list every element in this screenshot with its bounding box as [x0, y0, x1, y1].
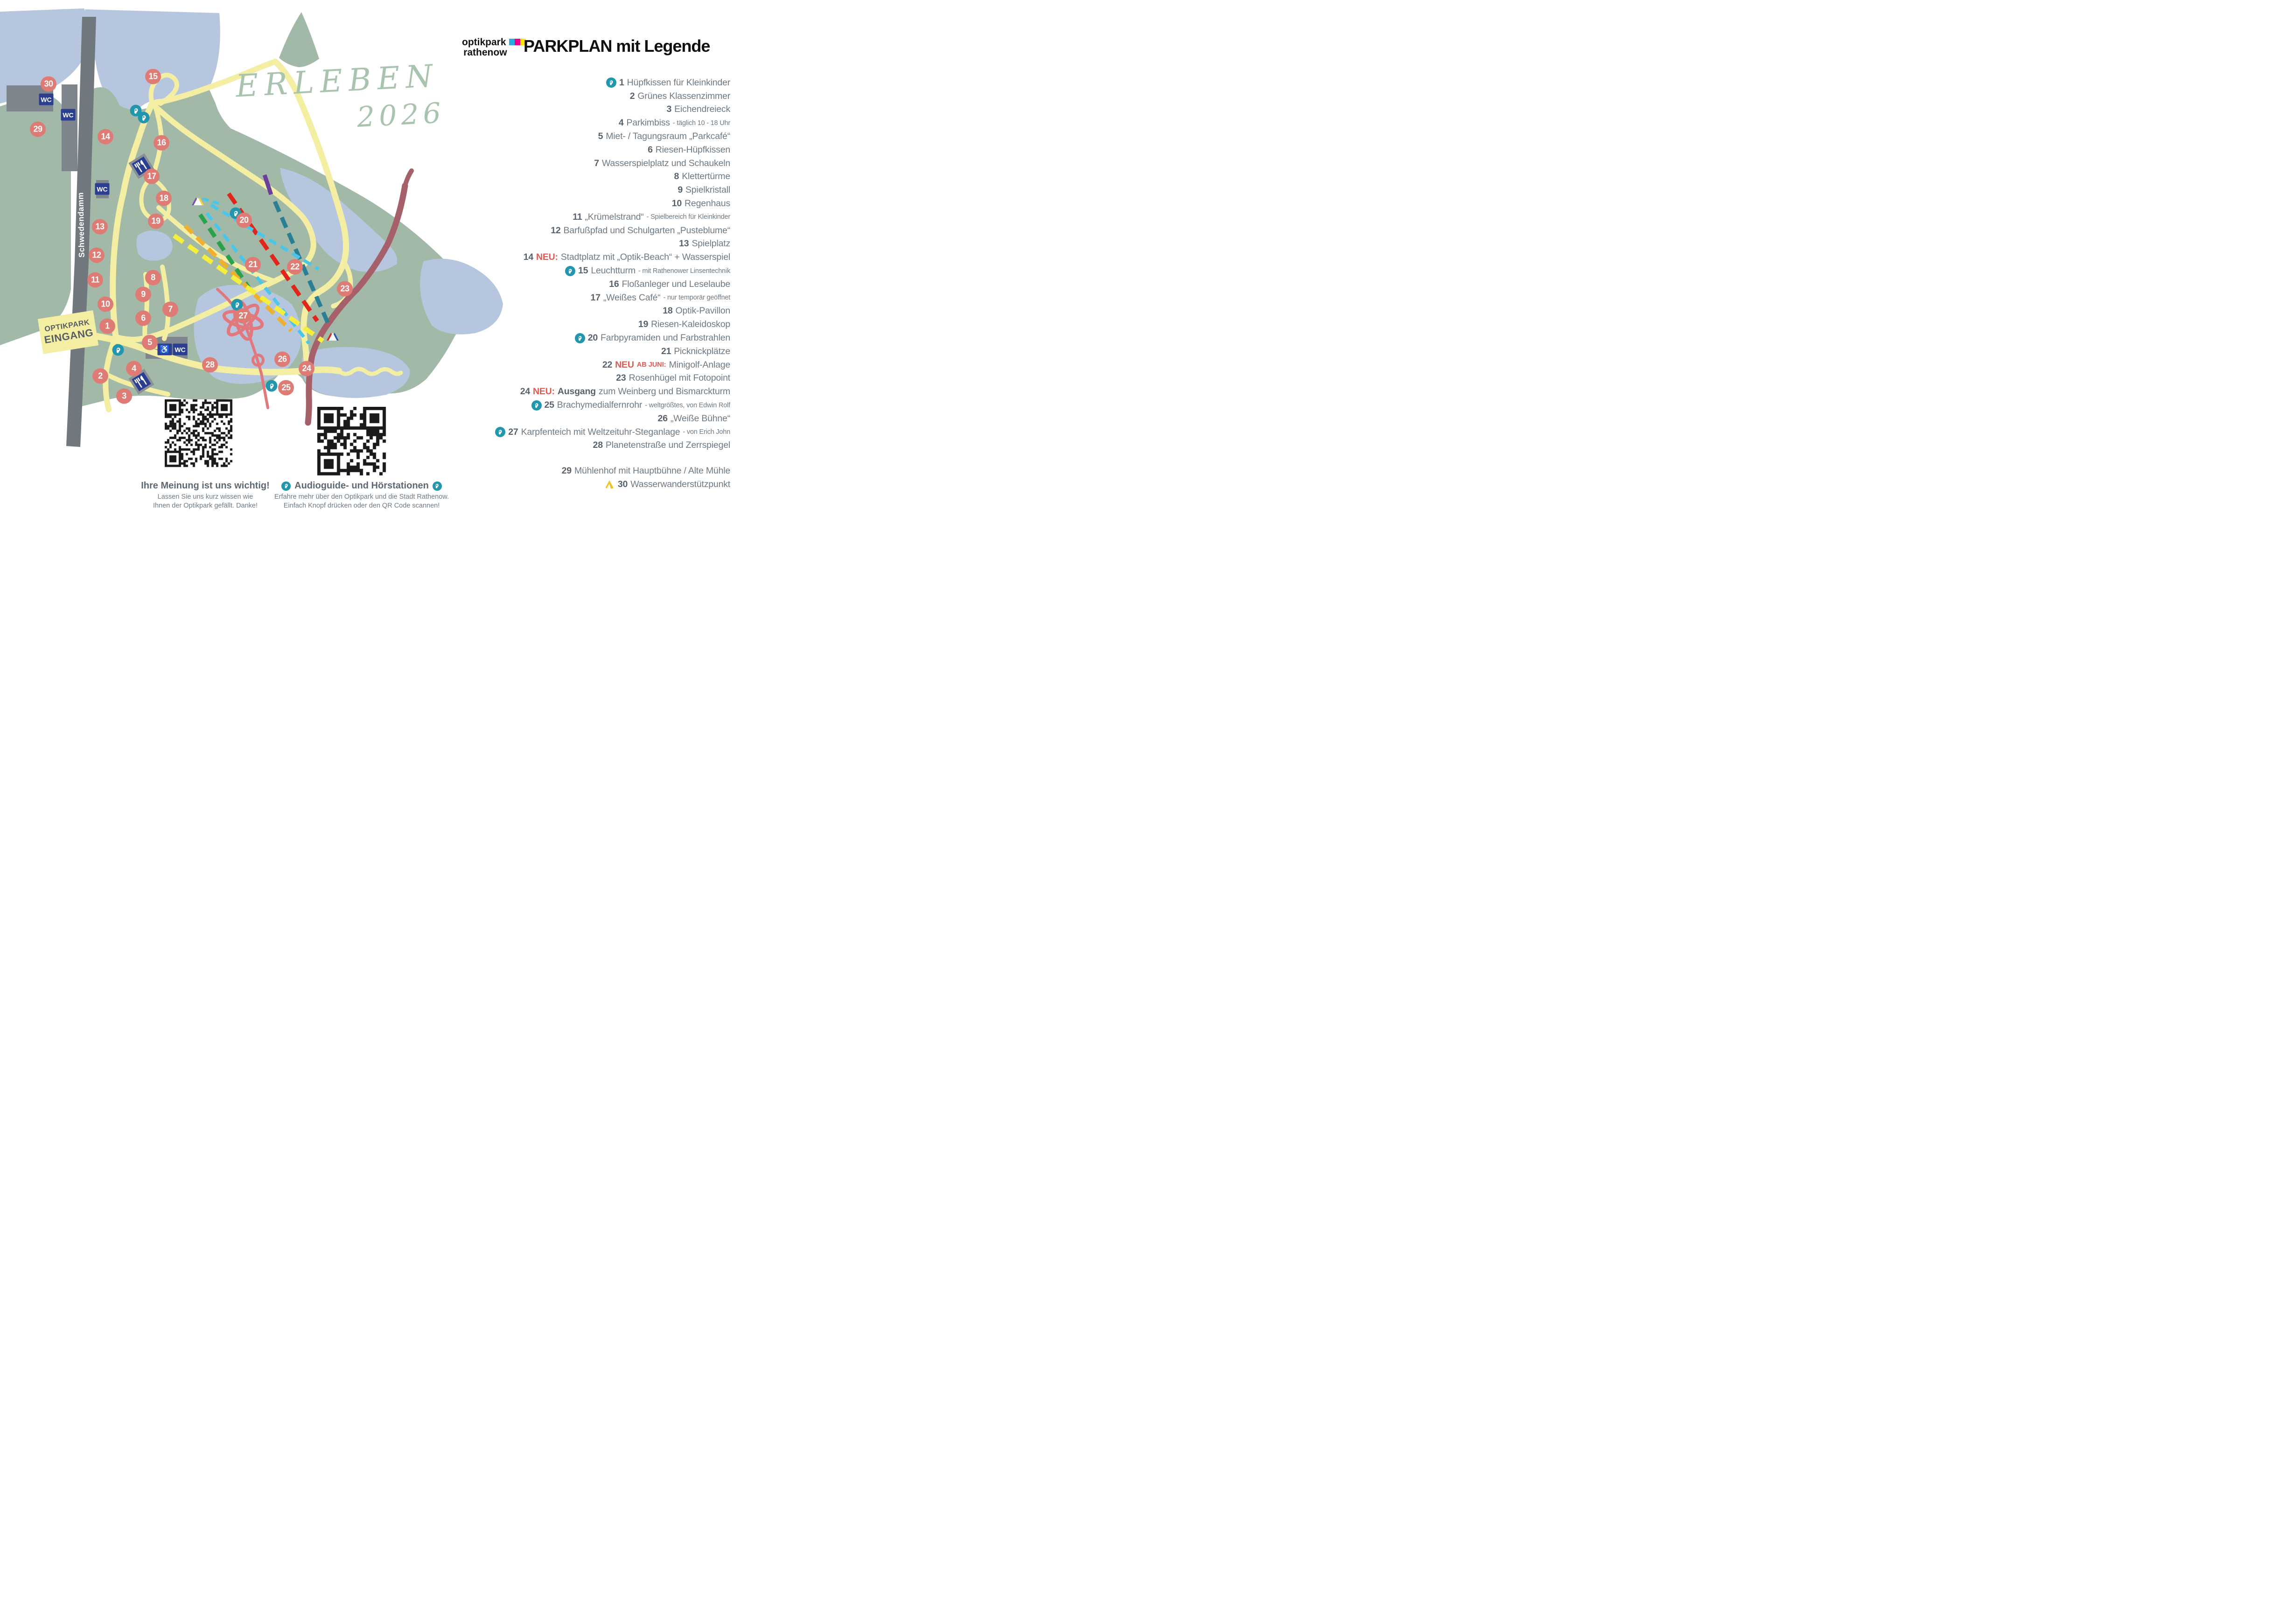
- map-marker-19[interactable]: 19: [148, 214, 164, 229]
- optikpark-logo: optikpark rathenow: [462, 37, 526, 58]
- legend-item-bold: Ausgang: [558, 386, 596, 397]
- legend-item-number: 18: [663, 306, 672, 316]
- legend-item-label: Grünes Klassenzimmer: [637, 91, 730, 102]
- legend-item-label: Parkimbiss: [627, 118, 670, 128]
- legend-item-25: 25Brachymedialfernrohr- weltgrößtes, von…: [495, 398, 730, 412]
- wc-icon: WC: [61, 109, 76, 121]
- qr-code-audioguide: [317, 407, 387, 478]
- legend-item-number: 20: [588, 333, 598, 343]
- legend-item-20: 20Farbpyramiden und Farbstrahlen: [495, 331, 730, 345]
- street-label: Schwedendamm: [76, 186, 87, 263]
- map-marker-12[interactable]: 12: [89, 248, 105, 263]
- legend-item-label: Minigolf-Anlage: [669, 360, 730, 370]
- legend-item-number: 9: [678, 185, 683, 195]
- legend-item-number: 5: [598, 131, 603, 142]
- wc-icon: WC: [39, 94, 54, 105]
- legend-item-13: 13Spielplatz: [495, 237, 730, 251]
- audio-station-icon[interactable]: [112, 344, 124, 356]
- legend-item-label: „Weißes Café“: [603, 293, 661, 303]
- map-marker-13[interactable]: 13: [92, 219, 108, 235]
- legend-item-label: Miet- / Tagungsraum „Parkcafé“: [606, 131, 730, 142]
- legend-item-label: Wasserwanderstützpunkt: [630, 479, 730, 490]
- legend-item-22: 22NEUAB JUNI:Minigolf-Anlage: [495, 358, 730, 372]
- page-title: PARKPLAN mit Legende: [524, 36, 710, 56]
- legend-item-21: 21Picknickplätze: [495, 345, 730, 358]
- legend-item-number: 27: [508, 427, 518, 438]
- legend-item-number: 7: [594, 158, 599, 169]
- legend-item-number: 12: [551, 225, 560, 236]
- lake-east: [420, 259, 503, 335]
- legend-item-label: Leuchtturm: [591, 265, 636, 276]
- legend-item-5: 5Miet- / Tagungsraum „Parkcafé“: [495, 130, 730, 143]
- legend: 1Hüpfkissen für Kleinkinder2Grünes Klass…: [495, 76, 730, 491]
- season-year: 2026: [356, 97, 446, 134]
- map-marker-25[interactable]: 25: [278, 380, 294, 396]
- parkplan-page: ERLEBEN 2026 optikpark rathenow PARKPLAN…: [0, 0, 760, 542]
- map-marker-18[interactable]: 18: [156, 191, 172, 206]
- map-marker-16[interactable]: 16: [154, 135, 169, 151]
- legend-item-label: Wasserspielplatz und Schaukeln: [602, 158, 730, 169]
- legend-item-number: 13: [679, 238, 689, 249]
- map-marker-28[interactable]: 28: [202, 357, 218, 373]
- audio-station-icon[interactable]: [138, 112, 150, 124]
- logo-word-2: rathenow: [462, 48, 526, 58]
- legend-item-number: 14: [524, 252, 533, 263]
- legend-item-note: - von Erich John: [683, 428, 730, 436]
- map-marker-10[interactable]: 10: [98, 297, 113, 312]
- audio-icon: [565, 266, 575, 276]
- map-marker-20[interactable]: 20: [236, 213, 252, 228]
- legend-item-note: - mit Rathenower Linsentechnik: [638, 267, 730, 275]
- legend-item-11: 11„Krümelstrand“- Spielbereich für Klein…: [495, 210, 730, 224]
- audio-icon: [575, 333, 585, 343]
- legend-item-label: Brachymedialfernrohr: [557, 400, 642, 411]
- map-marker-4[interactable]: 4: [126, 361, 142, 376]
- legend-item-15: 15Leuchtturm- mit Rathenower Linsentechn…: [495, 264, 730, 278]
- logo-word-1: optikpark: [462, 37, 506, 48]
- audioguide-line1: Erfahre mehr über den Optikpark und die …: [254, 493, 469, 502]
- legend-item-number: 3: [666, 104, 671, 115]
- wc-icon: WC: [95, 183, 110, 195]
- audioguide-title: Audioguide- und Hörstationen: [294, 481, 429, 491]
- legend-item-label: „Krümelstrand“: [585, 212, 643, 223]
- legend-item-number: 22: [602, 360, 612, 370]
- legend-item-19: 19Riesen-Kaleidoskop: [495, 318, 730, 331]
- legend-item-number: 28: [593, 440, 603, 451]
- legend-new-flag: NEU:: [533, 386, 555, 397]
- legend-item-note: - Spielbereich für Kleinkinder: [647, 213, 730, 221]
- legend-item-14: 14NEU:Stadtplatz mit „Optik-Beach“ + Was…: [495, 251, 730, 264]
- legend-item-label: Farbpyramiden und Farbstrahlen: [601, 333, 730, 343]
- legend-item-label: zum Weinberg und Bismarckturm: [599, 386, 730, 397]
- map-marker-3[interactable]: 3: [116, 389, 132, 404]
- legend-new-detail: AB JUNI:: [637, 361, 666, 369]
- map-marker-29[interactable]: 29: [30, 122, 46, 137]
- legend-item-29: 29Mühlenhof mit Hauptbühne / Alte Mühle: [495, 464, 730, 478]
- legend-item-number: 30: [618, 479, 628, 490]
- legend-item-number: 15: [578, 265, 588, 276]
- legend-item-label: Picknickplätze: [674, 346, 730, 357]
- legend-item-label: Riesen-Kaleidoskop: [651, 319, 730, 330]
- map-marker-7[interactable]: 7: [162, 302, 178, 317]
- legend-new-flag: NEU: [615, 360, 634, 370]
- legend-item-27: 27Karpfenteich mit Weltzeituhr-Steganlag…: [495, 425, 730, 439]
- legend-item-number: 10: [672, 198, 682, 209]
- legend-item-note: - weltgrößtes, von Edwin Rolf: [645, 402, 730, 409]
- legend-item-12: 12Barfußpfad und Schulgarten „Pusteblume…: [495, 224, 730, 237]
- legend-item-2: 2Grünes Klassenzimmer: [495, 90, 730, 103]
- legend-item-23: 23Rosenhügel mit Fotopoint: [495, 372, 730, 385]
- legend-item-label: Karpfenteich mit Weltzeituhr-Steganlage: [521, 427, 680, 438]
- legend-item-16: 16Floßanleger und Leselaube: [495, 278, 730, 291]
- legend-item-label: Stadtplatz mit „Optik-Beach“ + Wasserspi…: [561, 252, 730, 263]
- audioguide-line2: Einfach Knopf drücken oder den QR Code s…: [254, 502, 469, 510]
- map-marker-8[interactable]: 8: [145, 270, 161, 286]
- map-marker-9[interactable]: 9: [135, 287, 151, 302]
- audio-icon: [281, 481, 291, 491]
- legend-item-number: 29: [562, 466, 572, 476]
- map-marker-5[interactable]: 5: [142, 335, 158, 350]
- legend-item-3: 3Eichendreieck: [495, 103, 730, 117]
- legend-item-1: 1Hüpfkissen für Kleinkinder: [495, 76, 730, 90]
- legend-item-number: 8: [674, 171, 679, 182]
- legend-item-number: 6: [648, 145, 653, 155]
- legend-item-note: - täglich 10 - 18 Uhr: [673, 119, 730, 127]
- legend-item-label: Floßanleger und Leselaube: [622, 279, 730, 290]
- map-marker-30[interactable]: 30: [41, 77, 56, 92]
- legend-item-label: „Weiße Bühne“: [671, 413, 730, 424]
- legend-item-label: Hüpfkissen für Kleinkinder: [627, 77, 730, 88]
- qr-code-feedback: [165, 399, 242, 477]
- legend-item-label: Barfußpfad und Schulgarten „Pusteblume“: [564, 225, 731, 236]
- legend-item-10: 10Regenhaus: [495, 197, 730, 210]
- map-marker-14[interactable]: 14: [98, 129, 113, 145]
- map-marker-11[interactable]: 11: [87, 272, 103, 288]
- map-marker-6[interactable]: 6: [135, 311, 151, 326]
- legend-item-6: 6Riesen-Hüpfkissen: [495, 143, 730, 157]
- map-marker-26[interactable]: 26: [274, 352, 290, 367]
- legend-item-label: Klettertürme: [682, 171, 730, 182]
- map-marker-24[interactable]: 24: [299, 361, 314, 376]
- legend-item-number: 16: [609, 279, 619, 290]
- legend-item-number: 23: [616, 373, 626, 383]
- audio-icon: [606, 77, 616, 88]
- legend-item-label: Planetenstraße und Zerrspiegel: [606, 440, 730, 451]
- audio-icon: [433, 481, 442, 491]
- building-strip: [62, 84, 77, 171]
- wheelchair-icon: ♿: [158, 344, 172, 355]
- legend-new-flag: NEU:: [536, 252, 558, 263]
- legend-item-label: Rosenhügel mit Fotopoint: [629, 373, 730, 383]
- legend-item-label: Spielplatz: [692, 238, 730, 249]
- map-marker-1[interactable]: 1: [99, 319, 115, 334]
- legend-item-7: 7Wasserspielplatz und Schaukeln: [495, 157, 730, 170]
- legend-item-number: 21: [661, 346, 671, 357]
- legend-item-number: 4: [619, 118, 624, 128]
- park-peak: [279, 12, 319, 67]
- audio-station-icon[interactable]: [266, 380, 278, 392]
- legend-item-label: Mühlenhof mit Hauptbühne / Alte Mühle: [574, 466, 730, 476]
- legend-item-8: 8Klettertürme: [495, 170, 730, 184]
- legend-item-number: 11: [573, 212, 582, 223]
- legend-item-number: 25: [545, 400, 554, 411]
- legend-item-9: 9Spielkristall: [495, 183, 730, 197]
- legend-item-number: 24: [520, 386, 530, 397]
- tent-icon: [605, 481, 615, 489]
- map-marker-22[interactable]: 22: [287, 259, 303, 275]
- legend-item-17: 17„Weißes Café“- nur temporär geöffnet: [495, 291, 730, 305]
- map-marker-27[interactable]: 27: [235, 308, 251, 324]
- legend-item-4: 4Parkimbiss- täglich 10 - 18 Uhr: [495, 116, 730, 130]
- legend-item-label: Spielkristall: [685, 185, 730, 195]
- legend-item-label: Optik-Pavillon: [676, 306, 731, 316]
- audioguide-caption: Audioguide- und Hörstationen Erfahre meh…: [254, 481, 469, 510]
- legend-item-number: 17: [591, 293, 601, 303]
- map-marker-2[interactable]: 2: [92, 369, 108, 384]
- legend-item-24: 24NEU:Ausgangzum Weinberg und Bismarcktu…: [495, 385, 730, 398]
- legend-item-number: 1: [619, 77, 624, 88]
- map-marker-15[interactable]: 15: [145, 69, 161, 84]
- legend-item-number: 26: [658, 413, 668, 424]
- legend-item-note: - nur temporär geöffnet: [664, 294, 730, 301]
- legend-item-number: 2: [630, 91, 635, 102]
- map-marker-23[interactable]: 23: [337, 281, 353, 297]
- legend-item-26: 26„Weiße Bühne“: [495, 412, 730, 425]
- audio-icon: [531, 400, 542, 411]
- audio-icon: [495, 427, 505, 437]
- legend-item-label: Eichendreieck: [674, 104, 730, 115]
- legend-item-18: 18Optik-Pavillon: [495, 305, 730, 318]
- legend-item-28: 28Planetenstraße und Zerrspiegel: [495, 439, 730, 453]
- legend-item-number: 19: [638, 319, 648, 330]
- legend-item-label: Riesen-Hüpfkissen: [656, 145, 730, 155]
- map-marker-21[interactable]: 21: [245, 257, 261, 272]
- wc-icon: WC: [173, 344, 188, 355]
- legend-item-30: 30Wasserwanderstützpunkt: [495, 478, 730, 491]
- map-marker-17[interactable]: 17: [144, 169, 160, 184]
- legend-item-label: Regenhaus: [685, 198, 730, 209]
